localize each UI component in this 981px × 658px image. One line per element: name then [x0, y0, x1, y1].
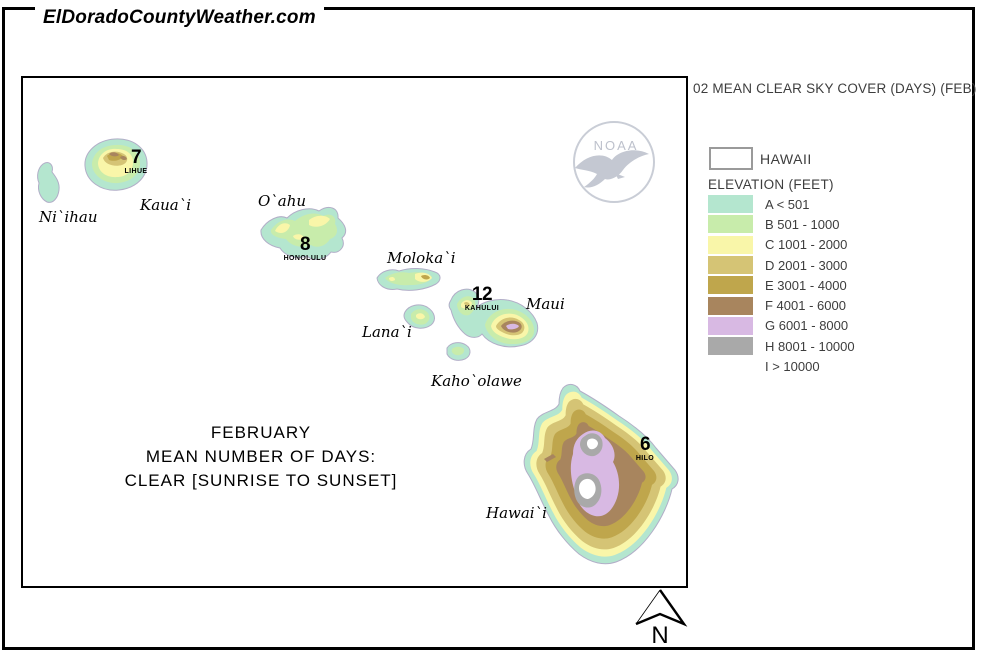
- legend-row: E 3001 - 4000: [708, 275, 855, 295]
- island-hawaii: [524, 384, 678, 563]
- station-honolulu-value: 8: [284, 235, 327, 254]
- label-oahu: O`ahu: [258, 192, 306, 210]
- station-hilo-value: 6: [636, 435, 654, 454]
- station-lihue-name: LIHUE: [125, 168, 148, 175]
- hawaii-region-label: HAWAII: [760, 151, 812, 167]
- north-arrow: N: [626, 588, 694, 650]
- noaa-logo-text: NOAA: [594, 138, 639, 153]
- legend-swatch-g: [708, 317, 753, 335]
- island-kahoolawe: [447, 343, 470, 361]
- noaa-logo-icon: NOAA: [574, 122, 654, 202]
- station-honolulu: 8 HONOLULU: [284, 235, 327, 262]
- legend-row: C 1001 - 2000: [708, 235, 855, 255]
- label-hawaii: Hawai`i: [486, 504, 547, 522]
- legend-label-e: E 3001 - 4000: [765, 278, 847, 293]
- label-maui: Maui: [526, 295, 565, 313]
- station-hilo: 6 HILO: [636, 435, 654, 462]
- legend-swatch-d: [708, 256, 753, 274]
- hawaii-region-swatch: [709, 147, 753, 170]
- legend-row: B 501 - 1000: [708, 214, 855, 234]
- label-kauai: Kaua`i: [140, 196, 191, 214]
- label-niihau: Ni`ihau: [39, 208, 97, 226]
- legend-row: D 2001 - 3000: [708, 255, 855, 275]
- station-honolulu-name: HONOLULU: [284, 255, 327, 262]
- legend-label-h: H 8001 - 10000: [765, 339, 855, 354]
- legend-row: I > 10000: [708, 356, 855, 376]
- map-graphic: NOAA: [23, 78, 686, 586]
- legend-swatch-b: [708, 215, 753, 233]
- north-arrow-label: N: [647, 622, 673, 650]
- legend-label-f: F 4001 - 6000: [765, 298, 846, 313]
- island-niihau: [38, 163, 60, 203]
- legend-swatch-f: [708, 297, 753, 315]
- station-lihue-value: 7: [125, 148, 148, 167]
- label-lanai: Lana`i: [362, 323, 412, 341]
- legend-swatch-a: [708, 195, 753, 213]
- station-kahului-name: KAHULUI: [465, 305, 499, 312]
- legend-label-g: G 6001 - 8000: [765, 318, 848, 333]
- legend-swatch-c: [708, 236, 753, 254]
- caption-line-3: CLEAR [SUNRISE TO SUNSET]: [46, 469, 476, 493]
- caption-line-2: MEAN NUMBER OF DAYS:: [46, 445, 476, 469]
- legend-swatch-i: [708, 358, 753, 376]
- legend-row: G 6001 - 8000: [708, 316, 855, 336]
- label-kahoolawe: Kaho`olawe: [431, 372, 522, 390]
- legend-label-i: I > 10000: [765, 359, 820, 374]
- elevation-legend: A < 501 B 501 - 1000 C 1001 - 2000 D 200…: [708, 194, 855, 377]
- legend-label-b: B 501 - 1000: [765, 217, 839, 232]
- station-kahului-value: 12: [465, 285, 499, 304]
- legend-row: F 4001 - 6000: [708, 295, 855, 315]
- station-lihue: 7 LIHUE: [125, 148, 148, 175]
- station-hilo-name: HILO: [636, 455, 654, 462]
- legend-row: H 8001 - 10000: [708, 336, 855, 356]
- legend-row: A < 501: [708, 194, 855, 214]
- site-title[interactable]: ElDoradoCountyWeather.com: [35, 7, 324, 29]
- legend-label-a: A < 501: [765, 197, 809, 212]
- label-molokai: Moloka`i: [387, 249, 456, 267]
- hawaii-map: NOAA Ni`ihau Kaua`i O`ahu Moloka`i Lana`…: [21, 76, 688, 588]
- legend-swatch-h: [708, 337, 753, 355]
- island-molokai: [377, 268, 440, 290]
- elevation-legend-title: ELEVATION (FEET): [708, 177, 834, 192]
- station-kahului: 12 KAHULUI: [465, 285, 499, 312]
- legend-label-c: C 1001 - 2000: [765, 237, 847, 252]
- legend-label-d: D 2001 - 3000: [765, 258, 847, 273]
- caption-line-1: FEBRUARY: [46, 421, 476, 445]
- panel-title: 02 MEAN CLEAR SKY COVER (DAYS) (FEB): [693, 81, 981, 96]
- map-caption: FEBRUARY MEAN NUMBER OF DAYS: CLEAR [SUN…: [46, 421, 476, 493]
- page: ElDoradoCountyWeather.com: [0, 0, 981, 658]
- legend-swatch-e: [708, 276, 753, 294]
